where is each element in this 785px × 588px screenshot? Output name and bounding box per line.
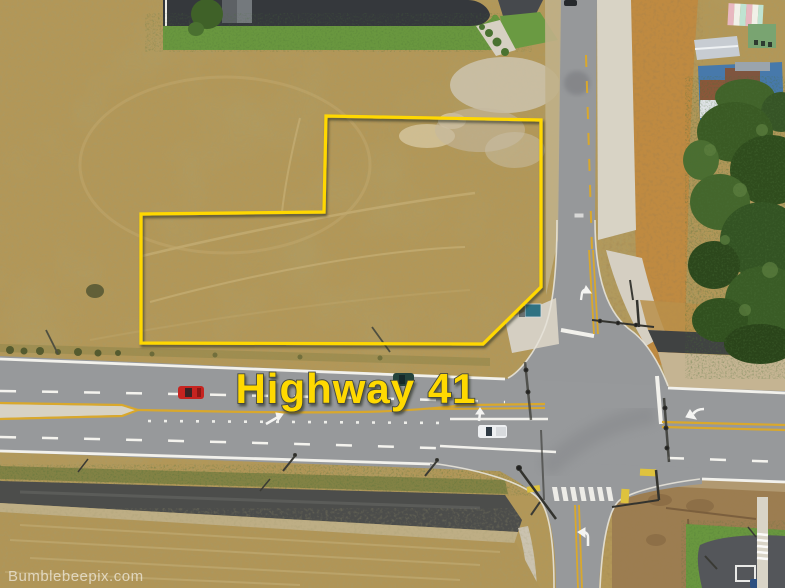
road-name-label: Highway 41: [235, 365, 476, 412]
shrub: [86, 284, 104, 298]
dirt-clod: [686, 499, 714, 513]
tree-top: [188, 22, 204, 36]
dirt-clod: [646, 534, 666, 546]
terrain-layer: [0, 0, 785, 588]
gravel-patch: [450, 57, 560, 113]
white-pickup: [478, 425, 507, 438]
red-car: [178, 386, 204, 399]
north-road-sidewalk: [597, 0, 636, 240]
tree-texture: [690, 90, 785, 365]
faint-marking: [575, 214, 583, 217]
aerial-photo: Highway 41 Bumblebeepix.com: [0, 0, 785, 588]
dark-car-top: [564, 0, 577, 6]
utility-shed: [525, 304, 541, 317]
sidewalk-east: [757, 497, 768, 588]
shed-roof-right: [237, 0, 252, 23]
pastel-roof-building: [727, 3, 763, 27]
gravel-patch: [485, 132, 545, 168]
shed-roof-left: [222, 0, 237, 23]
dirt-clod: [648, 494, 672, 506]
watermark: Bumblebeepix.com: [8, 568, 144, 585]
gray-roof-section: [735, 62, 770, 71]
east-trees: [683, 79, 785, 365]
